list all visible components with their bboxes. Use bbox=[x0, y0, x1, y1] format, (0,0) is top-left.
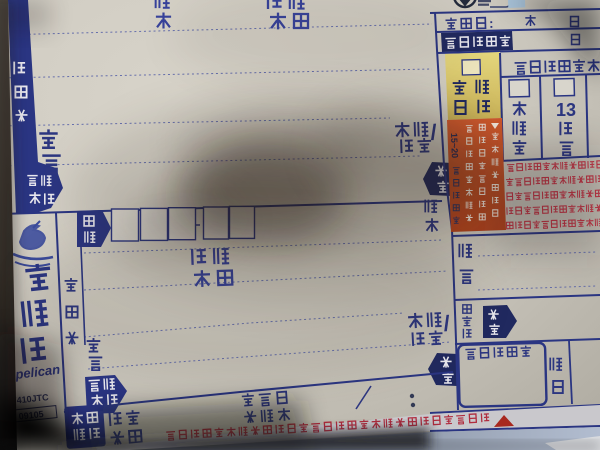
svg-text:13: 13 bbox=[556, 100, 576, 120]
svg-text::: : bbox=[489, 16, 494, 31]
